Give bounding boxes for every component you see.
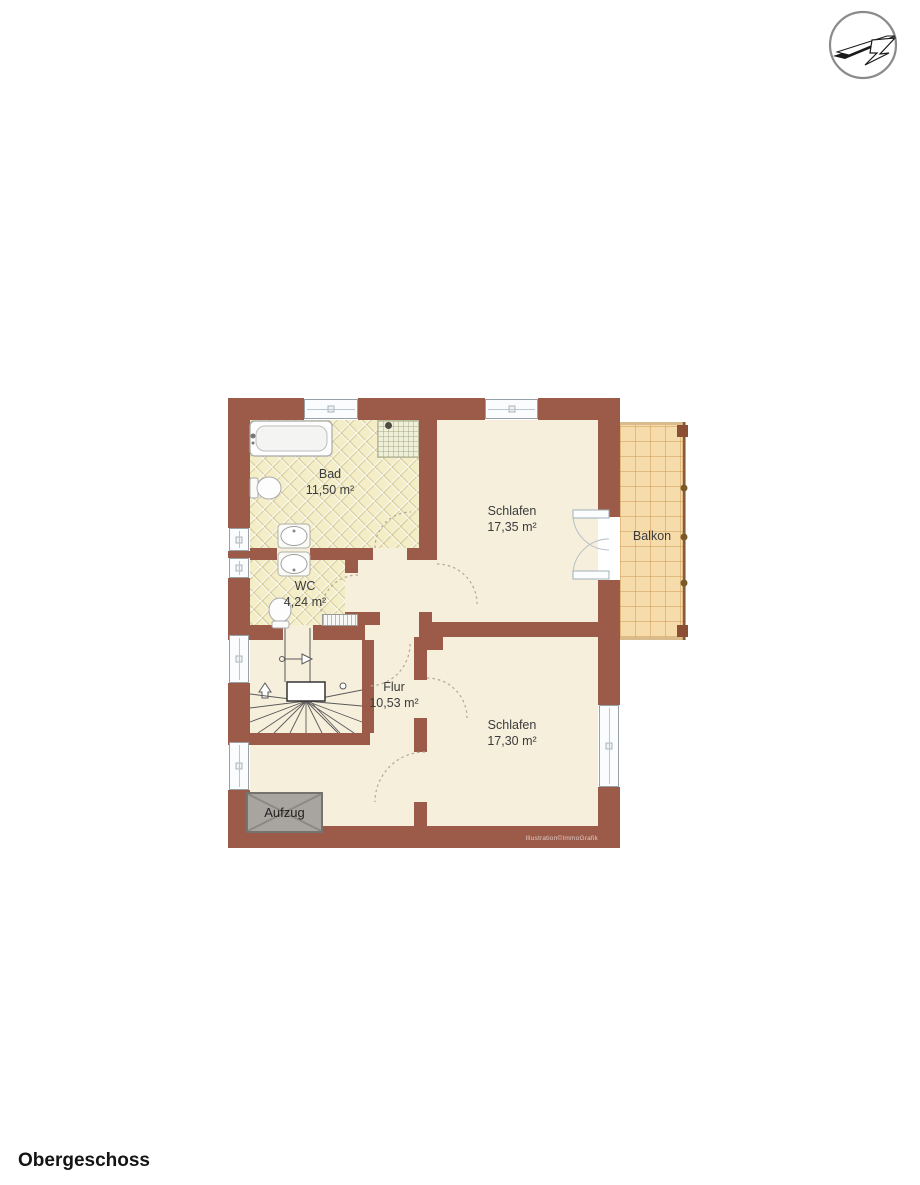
window — [229, 742, 249, 790]
wall-segment — [414, 637, 427, 680]
balkon-name: Balkon — [633, 528, 671, 544]
bad-name: Bad — [306, 466, 354, 482]
schlafen-bottom-label: Schlafen 17,30 m² — [487, 717, 536, 750]
floor-plan: Aufzug — [228, 392, 688, 852]
elevator-shaft: Aufzug — [246, 792, 323, 833]
wall-segment — [228, 551, 250, 558]
wall-segment — [414, 802, 427, 848]
window — [229, 635, 249, 683]
flur-name: Flur — [369, 679, 418, 695]
wc-label: WC 4,24 m² — [284, 578, 326, 611]
schlafen-top-label: Schlafen 17,35 m² — [487, 503, 536, 536]
wall-segment — [228, 733, 370, 745]
window — [229, 528, 249, 551]
wall-segment — [228, 398, 250, 528]
wc-area: 4,24 m² — [284, 594, 326, 610]
wall-segment — [598, 580, 620, 705]
schlafen-bottom-area: 17,30 m² — [487, 733, 536, 749]
schlafen-top-area: 17,35 m² — [487, 519, 536, 535]
aufzug-label: Aufzug — [264, 805, 304, 820]
window — [229, 558, 249, 578]
wall-segment — [313, 625, 365, 640]
wall-segment — [419, 622, 612, 637]
window — [599, 705, 619, 787]
wc-name: WC — [284, 578, 326, 594]
window — [485, 399, 538, 419]
watermark-text: Illustration©ImmoGrafik — [525, 835, 598, 842]
flur-label: Flur 10,53 m² — [369, 679, 418, 712]
wall-segment — [310, 548, 373, 560]
radiator — [322, 614, 358, 626]
wall-segment — [419, 417, 437, 560]
wall-segment — [345, 560, 358, 573]
shower-head-icon — [385, 422, 392, 429]
window — [304, 399, 358, 419]
wall-segment — [250, 548, 277, 560]
wall-segment — [407, 548, 419, 560]
bad-label: Bad 11,50 m² — [306, 466, 354, 499]
wall-segment — [598, 398, 620, 517]
immografik-logo-icon — [826, 8, 900, 82]
page-title: Obergeschoss — [18, 1150, 150, 1172]
schlafen-bottom-name: Schlafen — [487, 717, 536, 733]
bad-area: 11,50 m² — [306, 482, 354, 498]
flur-area: 10,53 m² — [369, 695, 418, 711]
balkon-label: Balkon — [633, 528, 671, 544]
wall-segment — [419, 612, 432, 622]
shower-tray — [377, 420, 419, 458]
schlafen-top-name: Schlafen — [487, 503, 536, 519]
wall-segment — [414, 718, 427, 752]
page-background: Aufzug — [0, 0, 920, 1185]
